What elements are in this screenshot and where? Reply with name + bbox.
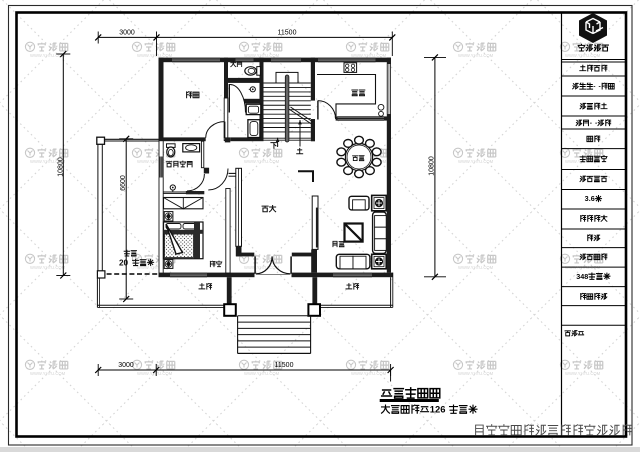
svg-text:3000: 3000 bbox=[118, 362, 134, 369]
svg-text:3.6: 3.6 bbox=[585, 194, 595, 203]
svg-text:11500: 11500 bbox=[275, 362, 294, 369]
svg-text:6600: 6600 bbox=[120, 175, 127, 191]
svg-text:10800: 10800 bbox=[429, 156, 436, 176]
svg-text:126: 126 bbox=[430, 404, 446, 415]
svg-text:10800: 10800 bbox=[58, 157, 65, 177]
svg-text:11500: 11500 bbox=[278, 30, 297, 37]
svg-text:348: 348 bbox=[576, 272, 588, 281]
svg-text:20: 20 bbox=[119, 259, 129, 268]
svg-text:3000: 3000 bbox=[119, 30, 135, 37]
